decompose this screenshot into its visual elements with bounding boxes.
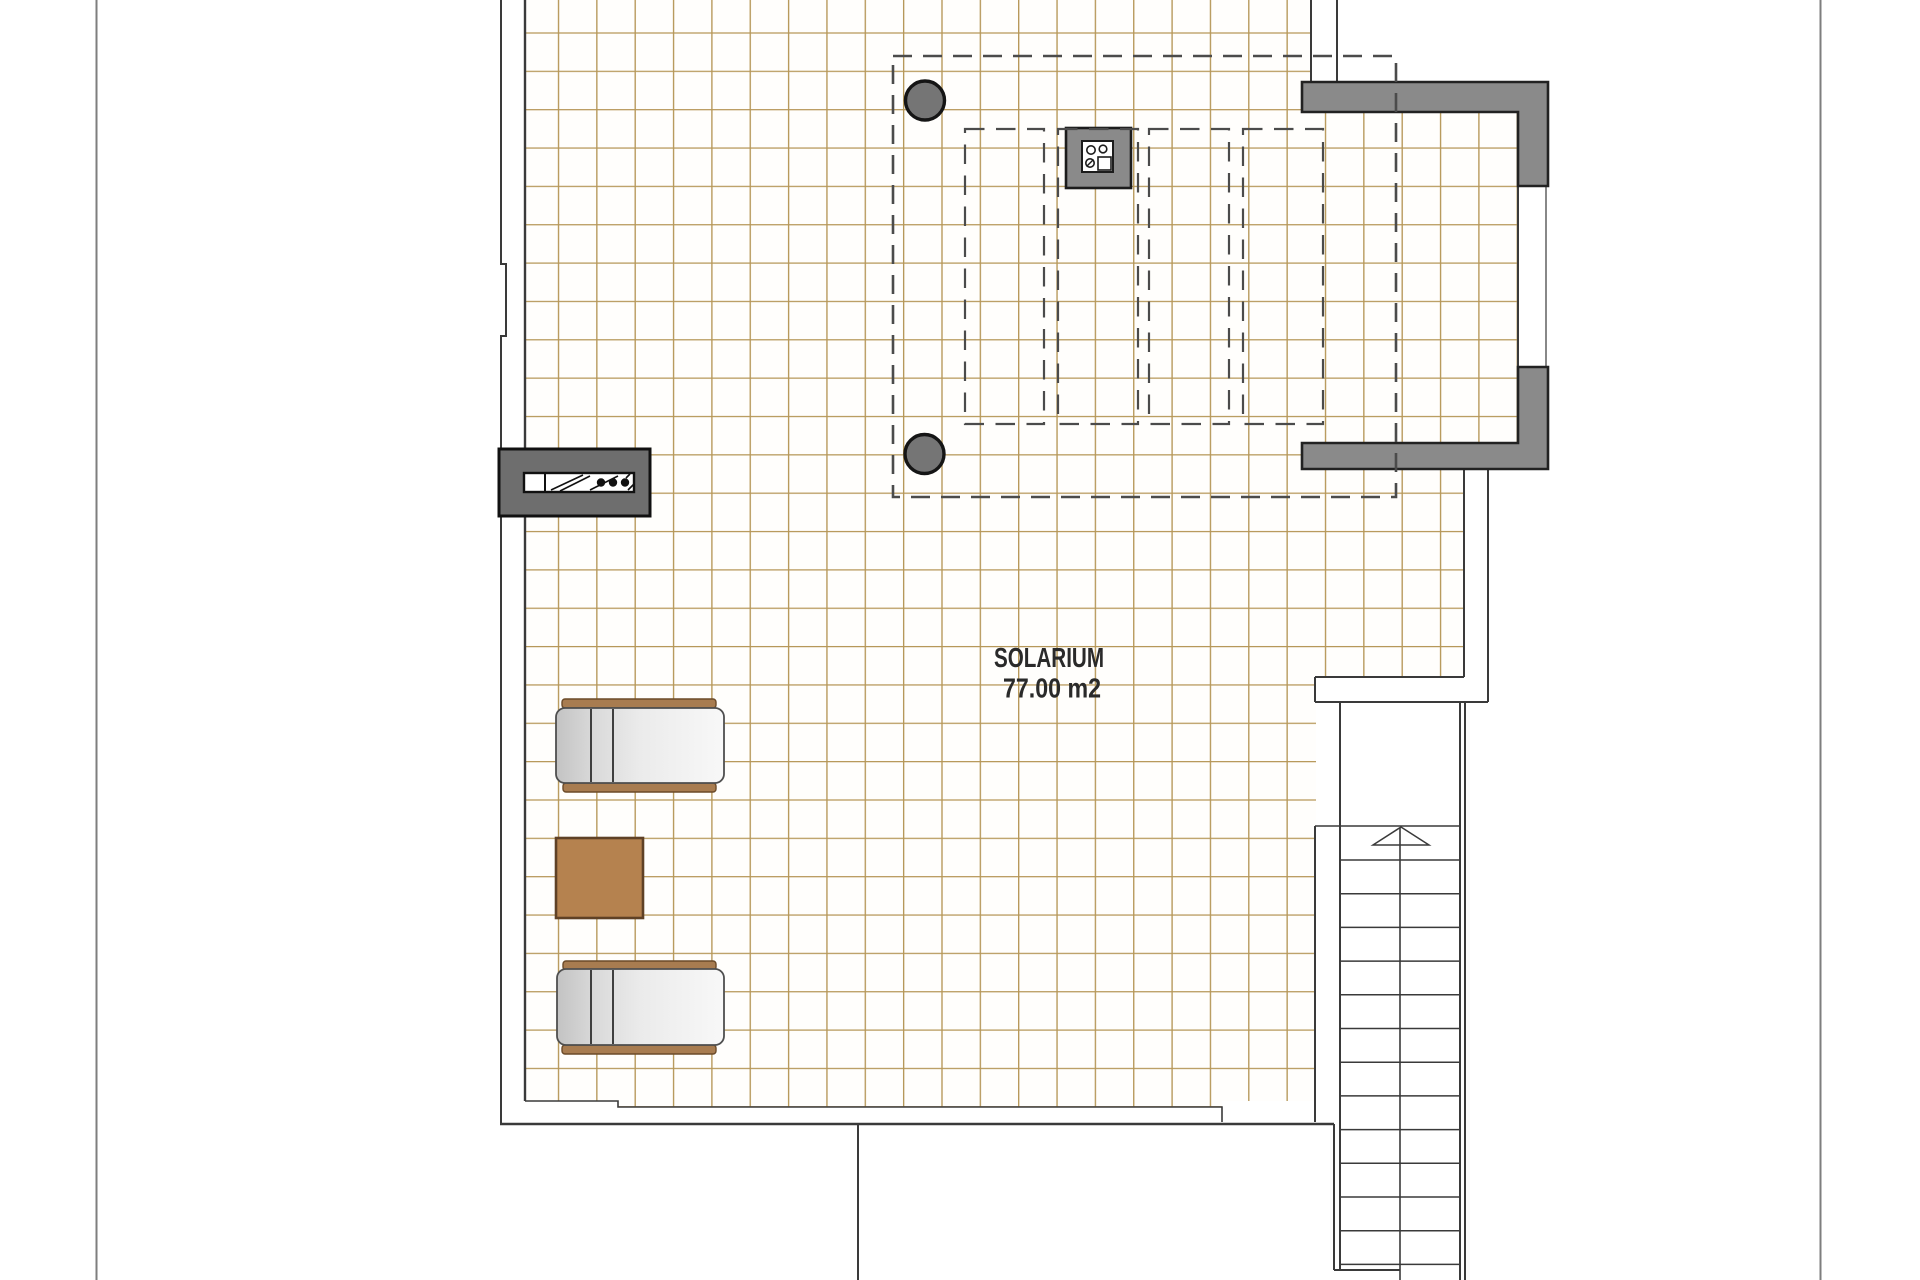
svg-text:77.00 m2: 77.00 m2 xyxy=(1003,673,1101,704)
svg-text:SOLARIUM: SOLARIUM xyxy=(994,642,1104,673)
